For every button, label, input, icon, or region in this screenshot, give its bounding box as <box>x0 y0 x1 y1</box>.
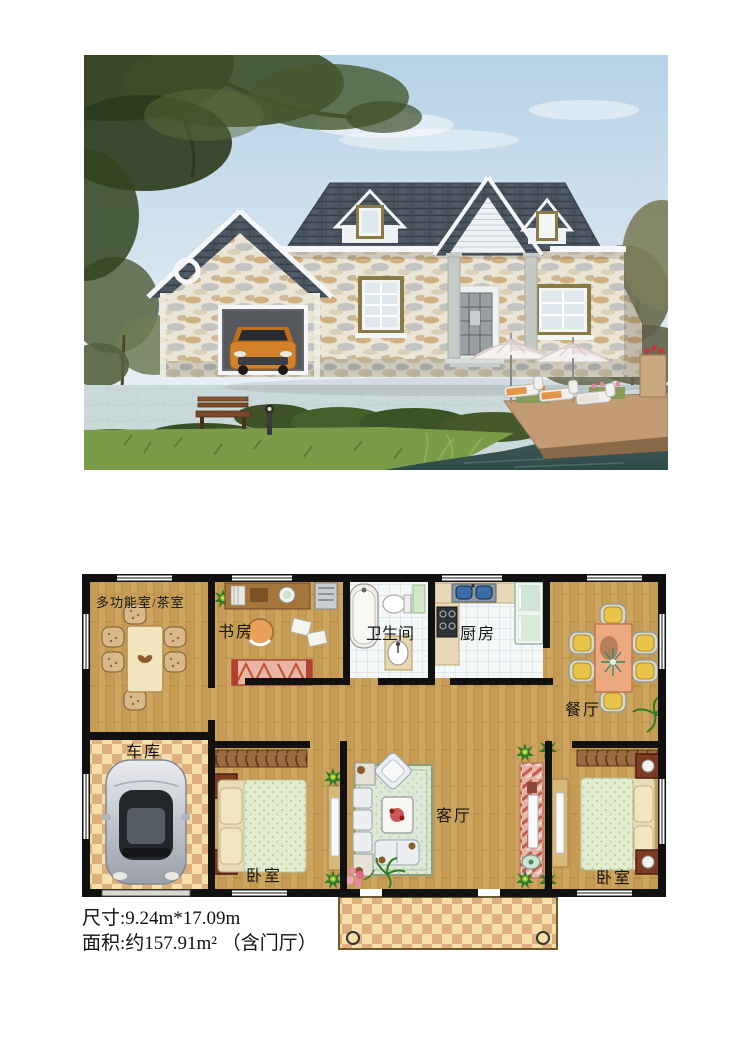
garage-door <box>102 890 190 896</box>
orange-suv <box>230 327 296 375</box>
room-label-living: 客厅 <box>436 802 472 826</box>
room-label-bedroom-left: 卧室 <box>246 862 282 886</box>
porch-column-left <box>347 932 359 944</box>
toilet <box>383 595 411 613</box>
closet <box>215 750 307 767</box>
coffee-table <box>382 797 413 833</box>
house-design-sheet: 多功能室/茶室 书房 卫生间 厨房 餐厅 车库 卧室 客厅 卧室 尺寸:9.24… <box>0 0 745 1053</box>
kitchen-sink <box>452 584 496 602</box>
spec-text: 尺寸:9.24m*17.09m 面积:约157.91m² （含门厅） <box>82 906 317 956</box>
stove <box>437 607 457 637</box>
rendering-scene <box>84 55 668 470</box>
front-window-left <box>355 276 407 338</box>
loveseat <box>375 840 419 865</box>
sofa <box>353 788 372 852</box>
bed <box>218 780 306 872</box>
porch-column-right <box>537 932 549 944</box>
floor-plan: 多功能室/茶室 书房 卫生间 厨房 餐厅 车库 卧室 客厅 卧室 <box>82 574 666 955</box>
car-top-view <box>102 760 190 884</box>
shower-screen <box>413 585 425 613</box>
room-label-dining: 餐厅 <box>565 696 601 720</box>
room-label-multi-tea: 多功能室/茶室 <box>96 592 185 611</box>
eave-fascia-right <box>550 246 626 252</box>
room-label-study: 书房 <box>218 618 254 642</box>
tv-console <box>520 763 543 878</box>
house-exterior-rendering <box>84 55 668 470</box>
room-label-bathroom: 卫生间 <box>366 620 414 644</box>
refrigerator <box>515 582 543 644</box>
spec-dimensions: 尺寸:9.24m*17.09m <box>82 906 317 931</box>
room-label-garage: 车库 <box>126 738 162 762</box>
room-label-kitchen: 厨房 <box>460 620 496 644</box>
study-cabinet <box>315 583 337 609</box>
entry-porch <box>339 897 557 949</box>
room-label-bedroom-right: 卧室 <box>596 864 632 888</box>
spec-area: 面积:约157.91m² （含门厅） <box>82 931 317 956</box>
front-window-right <box>532 284 594 340</box>
